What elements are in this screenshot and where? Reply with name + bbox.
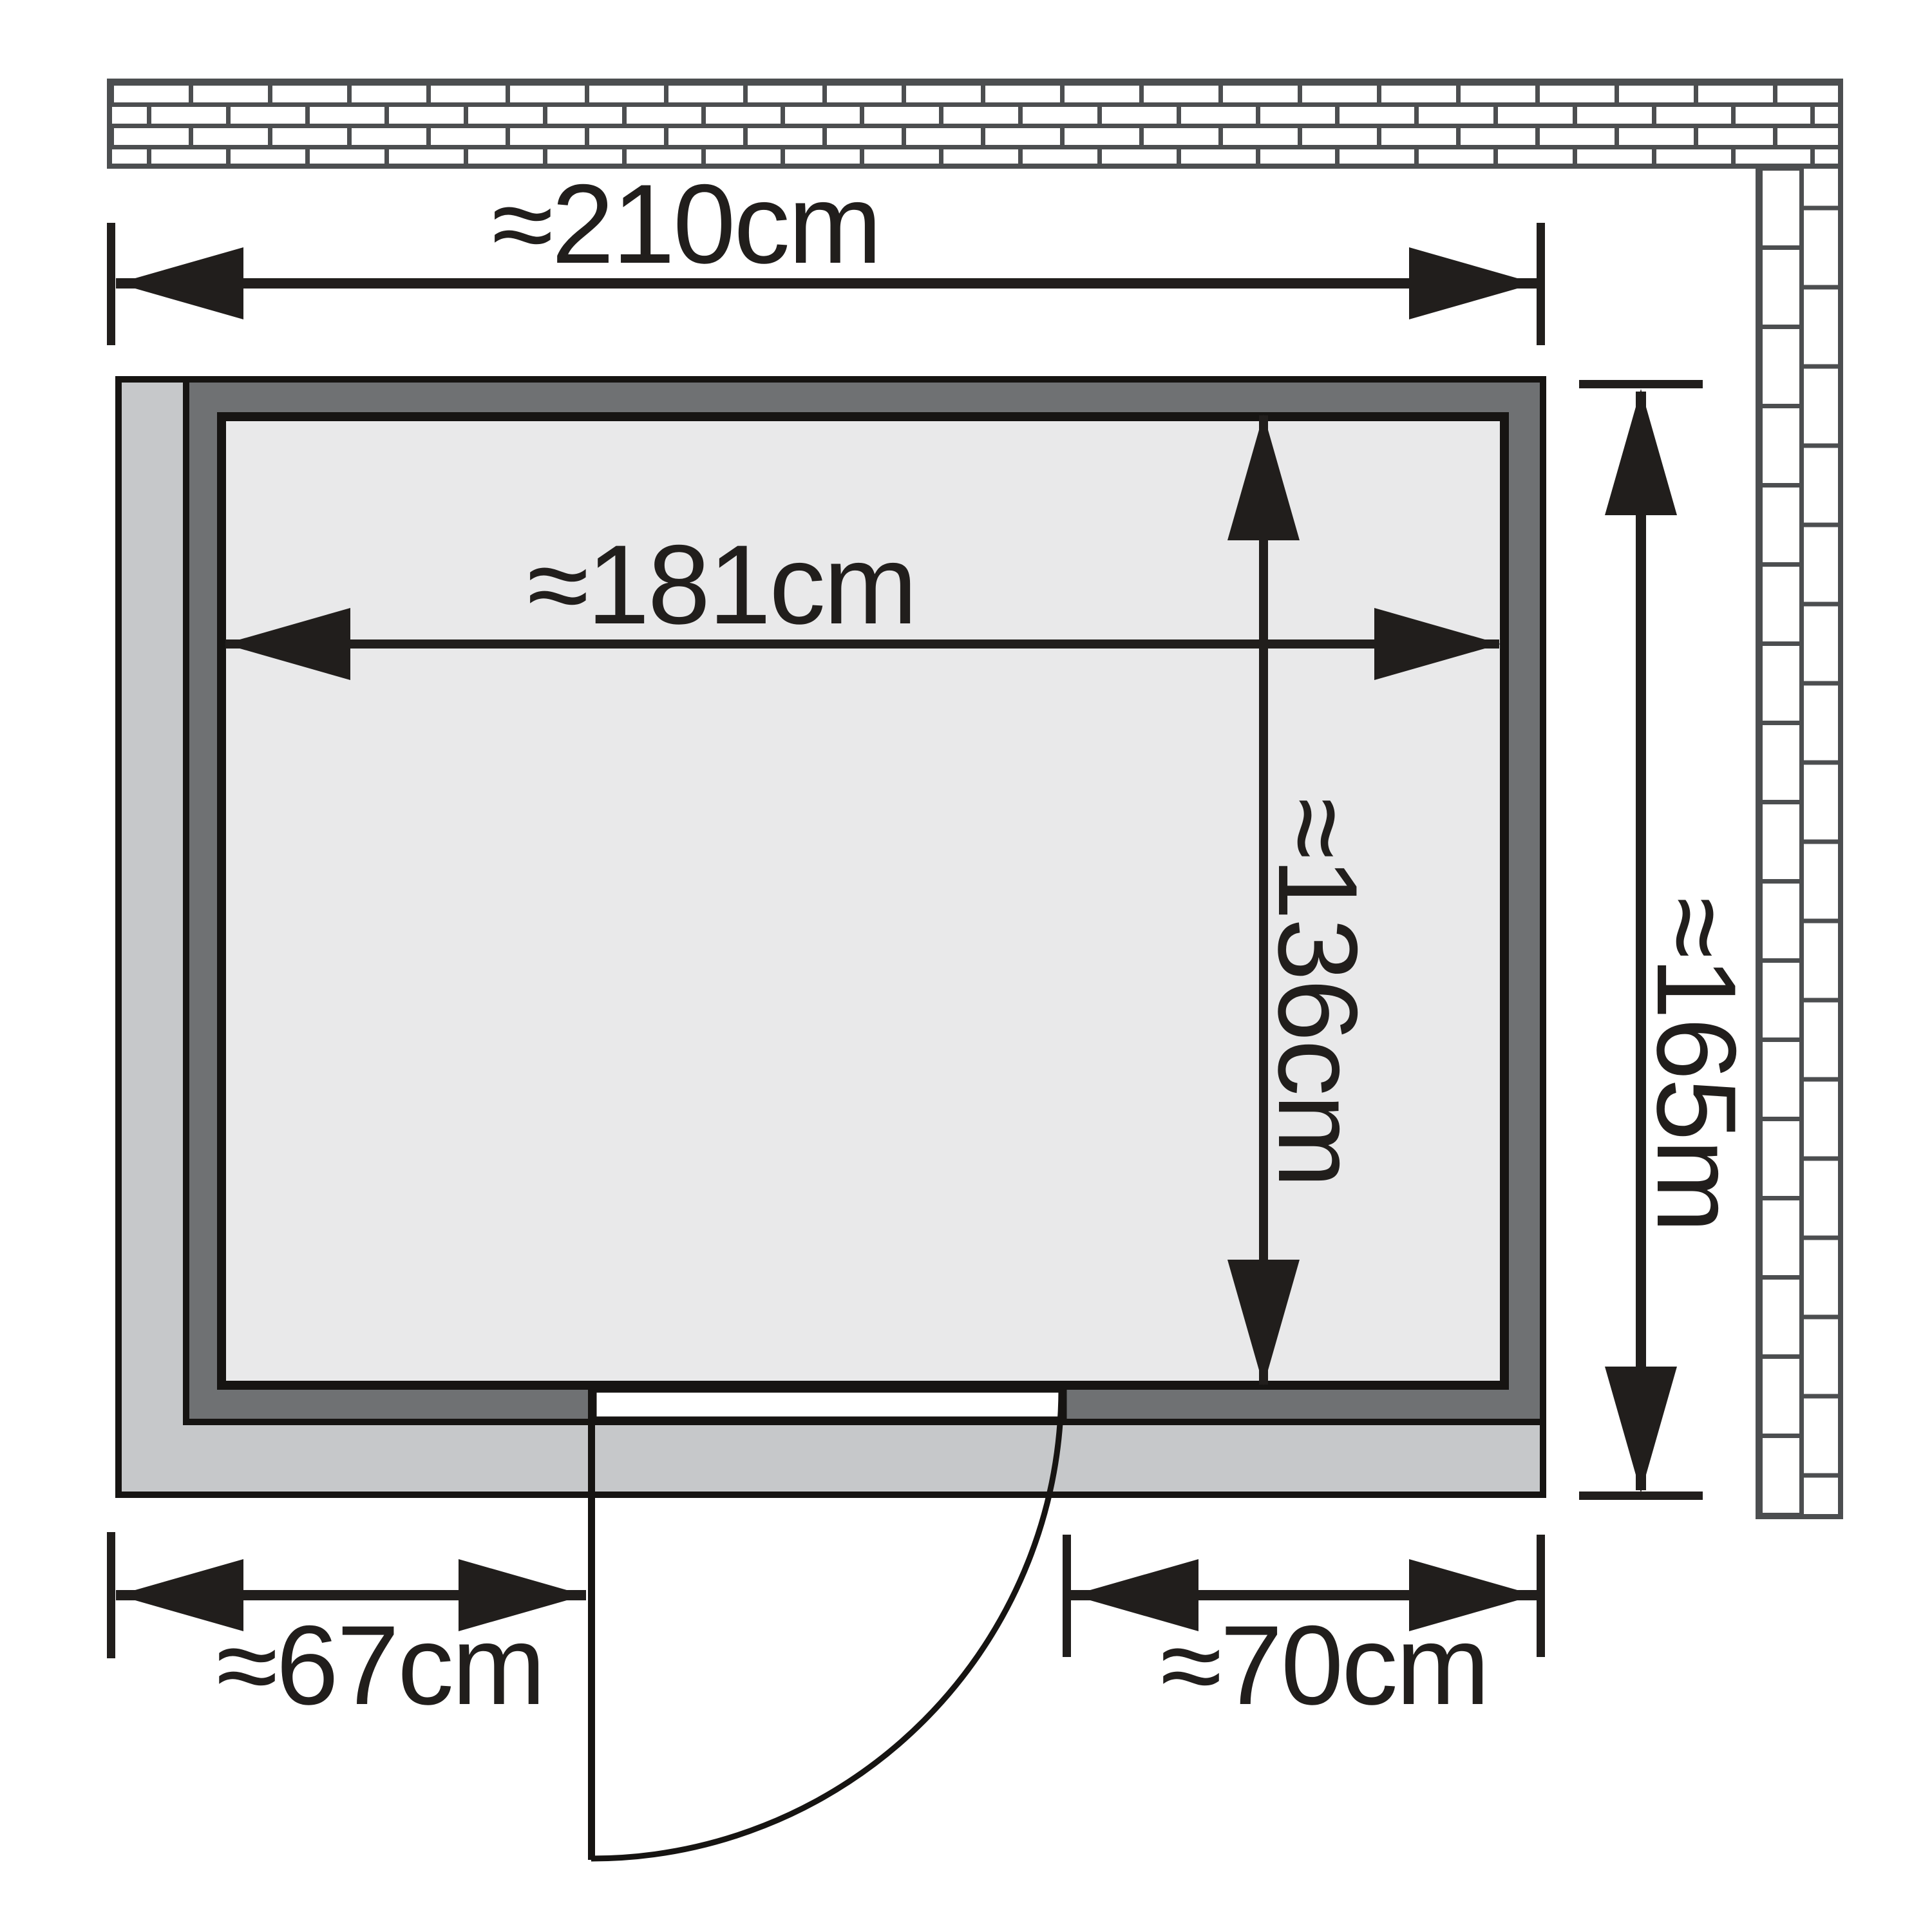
sauna-floor-plan-diagram: ≈210cm ≈181cm ≈136cm ≈165m: [0, 0, 1932, 1932]
dimension-door-offset-right: ≈70cm: [1063, 1535, 1545, 1728]
door-opening: [594, 1390, 1064, 1419]
label-door-offset-left: ≈67cm: [216, 1603, 544, 1728]
dim-210-arrow-left: [117, 247, 243, 319]
label-outer-depth: ≈165m: [1633, 897, 1759, 1231]
brick-wall-top: [109, 81, 1841, 166]
dim-210-tick-left: [107, 223, 115, 345]
dim-210-tick-right: [1537, 223, 1545, 345]
label-inner-width: ≈181cm: [527, 522, 915, 648]
brick-wall-right: [1758, 166, 1841, 1517]
door-leaf: [588, 1390, 595, 1860]
label-outer-width: ≈210cm: [491, 162, 880, 287]
dimension-outer-width: ≈210cm: [107, 162, 1545, 345]
label-inner-depth: ≈136cm: [1255, 797, 1380, 1186]
dim-67-tick-left: [107, 1532, 115, 1658]
dim-165-tick-top: [1579, 380, 1703, 388]
dimension-door-offset-left: ≈67cm: [107, 1532, 586, 1728]
label-door-offset-right: ≈70cm: [1160, 1603, 1488, 1728]
dim-70-tick-left: [1063, 1535, 1071, 1657]
dim-165-arrow-bottom: [1605, 1367, 1677, 1493]
dimension-outer-depth: ≈165m: [1579, 380, 1759, 1500]
dim-70-tick-right: [1537, 1535, 1545, 1657]
dim-210-arrow-right: [1409, 247, 1535, 319]
dim-165-arrow-top: [1605, 389, 1677, 515]
